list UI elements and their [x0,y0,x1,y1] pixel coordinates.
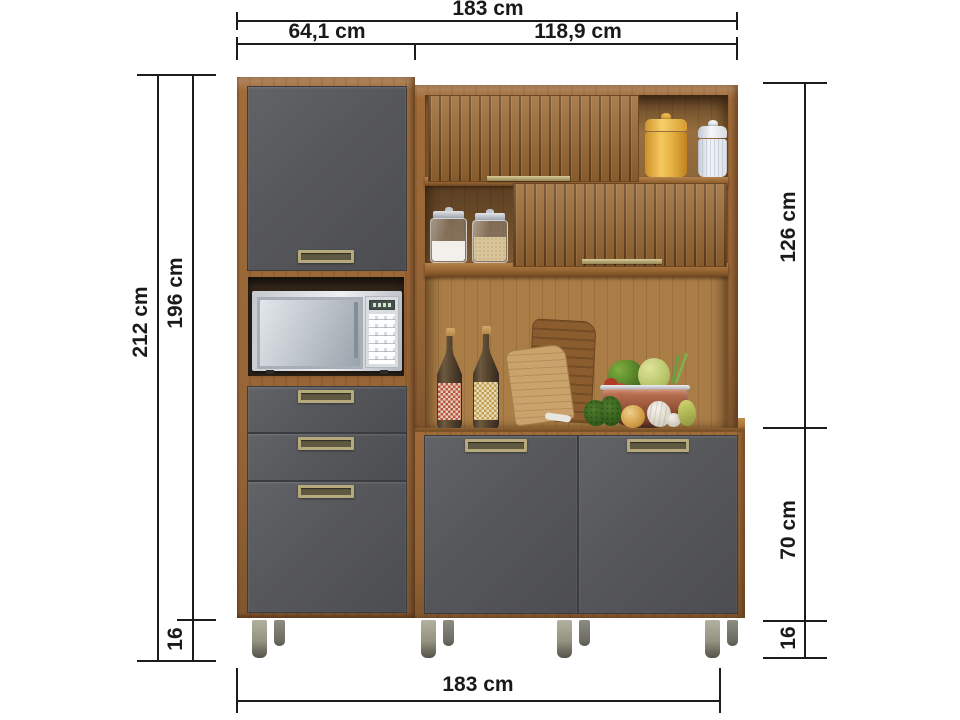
dim-tick [177,619,216,621]
dim-tick [763,657,827,659]
dim-label-top-left-section: 64,1 cm [247,21,407,43]
dim-label-bottom-total: 183 cm [378,674,578,696]
base-door-right [578,435,738,614]
canister-lid [645,119,687,131]
dim-line-left-body-height [192,74,194,662]
cabinet-leg-back [443,620,454,646]
lower-left-door [247,481,407,613]
cabinet-leg-front [557,620,572,658]
dim-line-top-sections [237,43,738,45]
dim-label-left-body-height: 196 cm [165,248,187,338]
pear [678,400,696,426]
dim-label-left-feet-height: 16 [165,624,187,654]
cabinet-leg-back [579,620,590,646]
dim-tick [736,37,738,60]
dim-label-right-feet-height: 16 [778,623,800,653]
microwave [252,291,402,371]
dim-tick [236,668,238,713]
dim-label-top-total: 183 cm [388,0,588,20]
sliding-door-upper-handle [487,176,570,181]
microwave-door [257,297,363,369]
microwave-display [369,300,395,310]
dim-tick [236,12,238,30]
microwave-foot [380,370,388,374]
microwave-door-handle [354,302,358,358]
cabinet-leg-front [252,620,267,658]
sliding-slat-door-lower [513,183,727,267]
dim-tick [719,668,721,713]
microwave-niche [248,277,404,376]
cabinet-leg-front [705,620,720,658]
white-canister [698,120,727,177]
cabinet-leg-front [421,620,436,658]
dim-label-right-upper-height: 126 cm [778,182,800,272]
dim-line-bottom-total [237,700,721,702]
glass-jar-sugar [430,207,467,263]
bottle-label [474,382,498,420]
dim-tick [137,74,216,76]
canister-lid [698,126,727,138]
jar-contents-grains [474,237,506,261]
left-tall-cabinet [237,77,415,618]
bottle-red-label [437,328,462,428]
microwave-control-panel [365,296,399,368]
dim-line-right-heights [804,82,806,659]
canister-body [698,139,727,177]
base-door-left [424,435,578,614]
dim-label-left-total-height: 212 cm [130,277,152,367]
dim-tick [236,37,238,60]
yellow-canister [645,113,687,177]
dim-label-right-lower-height: 70 cm [778,485,800,575]
onion [621,405,645,428]
dim-tick [736,12,738,30]
canister-body [645,132,687,177]
glass-jar-grains [472,209,508,263]
cabinet-leg-back [727,620,738,646]
base-door-left-handle [465,439,527,452]
bottle-label [438,383,461,420]
base-cabinet [413,418,745,618]
jar-contents-sugar [432,241,465,261]
dim-tick [137,660,216,662]
cabinet-dimension-diagram: 183 cm 64,1 cm 118,9 cm 212 cm 196 cm 16… [0,0,960,720]
sliding-slat-door-upper [428,95,639,182]
dim-line-left-total-height [157,74,159,662]
dim-tick [763,620,827,622]
parsley [600,396,622,426]
dim-label-top-right-section: 118,9 cm [498,21,658,43]
upper-left-door-handle [298,250,354,263]
upper-left-door [247,86,407,271]
sliding-door-lower-handle [582,259,662,264]
drawer-middle-handle [298,437,354,450]
microwave-foot [266,370,274,374]
cabinet-leg-back [274,620,285,646]
dim-tick [763,82,827,84]
drawer-top-handle [298,390,354,403]
lower-left-door-handle [298,485,354,498]
bottle-tan-label [473,326,499,428]
base-door-right-handle [627,439,689,452]
microwave-buttons [369,314,395,364]
dim-tick [414,43,416,60]
dim-tick [763,427,827,429]
